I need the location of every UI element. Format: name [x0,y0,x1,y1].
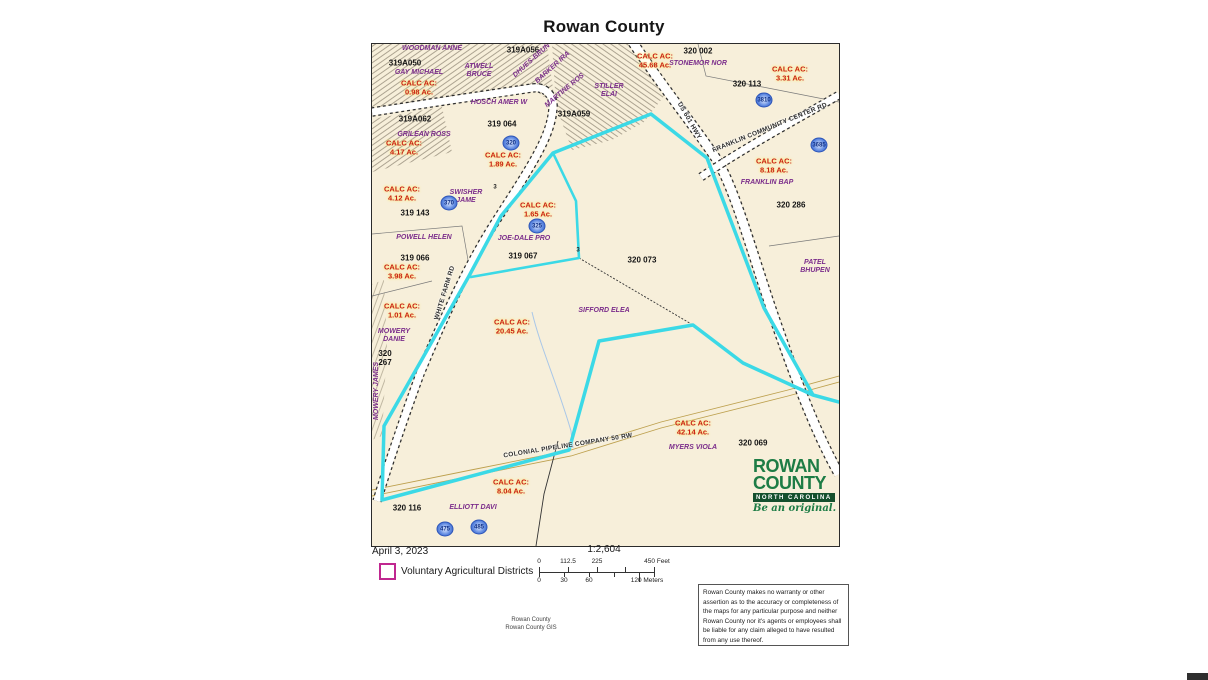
owner-name-label: MYERS VIOLA [669,444,717,452]
scale-meter-tick: 30 [560,577,567,584]
calc-acreage-label: CALC AC:8.18 Ac. [756,157,792,174]
vad-legend-swatch [379,563,396,580]
address-point-icon: 475 [437,522,454,537]
logo-line2: COUNTY [753,475,840,492]
parcel-id-label: 320 073 [628,255,657,264]
scale-feet-tick: 225 [592,558,603,565]
parcel-id-label: 320 113 [733,79,761,88]
calc-acreage-label: CALC AC:1.65 Ac. [520,201,556,218]
owner-name-label: POWELL HELEN [396,234,451,242]
calc-acreage-label: CALC AC:1.89 Ac. [485,151,521,168]
disclaimer-box: Rowan County makes no warranty or other … [698,584,849,646]
calc-acreage-label: CALC AC:3.98 Ac. [384,263,420,280]
scale-tick [625,567,626,572]
scale-tick [539,567,540,577]
owner-name-label: STILLER ELAI [594,83,623,99]
calc-acreage-label: CALC AC:20.45 Ac. [494,318,530,335]
credit-line: Rowan County GIS [496,625,566,633]
parcel-id-label: 320 069 [739,438,768,447]
logo-tagline: Be an original. [753,503,840,514]
parcel-id-label: 319A062 [399,114,431,123]
owner-name-label: SIFFORD ELEA [578,307,629,315]
owner-name-label: ATWELL BRUCE [465,63,494,79]
vad-legend-label: Voluntary Agricultural Districts [401,566,533,577]
credit-line: Rowan County [496,617,566,625]
scale-feet-tick: 0 [537,558,541,565]
address-point-icon: 3685 [811,138,828,153]
scale-bar-line [539,572,654,573]
owner-name-label: JOE-DALE PRO [498,235,551,243]
scale-tick [614,572,615,577]
address-point-icon: 3810 [756,93,773,108]
owner-name-label: MOWERY JAMES [373,362,381,420]
scale-meter-tick: 60 [585,577,592,584]
scale-feet-tick: 112.5 [560,558,576,565]
owner-name-label: WOODMAN ANNE [402,45,462,53]
parcel-id-label: 319 066 [401,253,430,262]
parcel-id-label: 320 116 [393,503,421,512]
parcel-id-label: 319A050 [389,58,421,67]
calc-acreage-label: CALC AC:4.17 Ac. [386,139,422,156]
scale-tick [654,567,655,577]
address-point-icon: 485 [471,520,488,535]
address-point-icon: 325 [529,219,546,234]
calc-acreage-label: CALC AC:0.98 Ac. [401,79,437,96]
logo-state-bar: NORTH CAROLINA [753,493,835,502]
parcel-id-label: 319 143 [401,208,430,217]
calc-acreage-label: CALC AC:3.31 Ac. [772,65,808,82]
calc-acreage-label: CALC AC:1.01 Ac. [384,302,420,319]
map-title: Rowan County [0,17,1208,37]
road-name-label: COLONIAL PIPELINE COMPANY 50 RW [503,432,633,460]
scale-tick [568,567,569,572]
road-name-label: US 601 HWY [675,101,702,141]
lot-number-label: 3 [576,248,579,255]
owner-name-label: MOWERY DANIE [378,328,410,344]
owner-name-label: HOSCH AMER W [471,99,527,107]
address-point-icon: 320 [503,136,520,151]
scale-tick [597,567,598,572]
owner-name-label: GAY MICHAEL [395,69,443,77]
parcel-id-label: 319 064 [488,119,517,128]
scale-meter-tick: 120 Meters [631,577,664,584]
owner-name-label: MARTINE ROS [544,72,587,110]
parcel-id-label: 320 002 [684,46,713,55]
map-credit: Rowan County Rowan County GIS [496,617,566,633]
scale-meter-tick: 0 [537,577,541,584]
parcel-map: 319A056319A050320 002320 113319A062319 0… [371,43,840,547]
calc-acreage-label: CALC AC:45.68 Ac. [637,52,673,69]
scale-feet-tick: 450 Feet [644,558,670,565]
rowan-county-logo: ROWAN COUNTY NORTH CAROLINA Be an origin… [753,458,840,514]
map-date: April 3, 2023 [372,546,428,557]
owner-name-label: PATEL BHUPEN [800,259,830,275]
road-name-label: WHITE FARM RD [433,265,457,321]
owner-name-label: STONEMOR NOR [669,60,727,68]
parcel-id-label: 320 286 [777,200,806,209]
lot-number-label: 3 [493,185,496,192]
owner-name-label: ELLIOTT DAVI [449,504,496,512]
scale-ratio: 1:2,604 [539,544,669,555]
address-point-icon: 370 [441,196,458,211]
parcel-id-label: 319 067 [509,251,538,260]
page: Rowan County [0,0,1208,680]
calc-acreage-label: CALC AC:42.14 Ac. [675,419,711,436]
screen-corner-artifact [1187,673,1208,680]
calc-acreage-label: CALC AC:4.12 Ac. [384,185,420,202]
owner-name-label: FRANKLIN BAP [741,179,794,187]
parcel-id-label: 319A059 [558,109,590,118]
calc-acreage-label: CALC AC:8.04 Ac. [493,478,529,495]
